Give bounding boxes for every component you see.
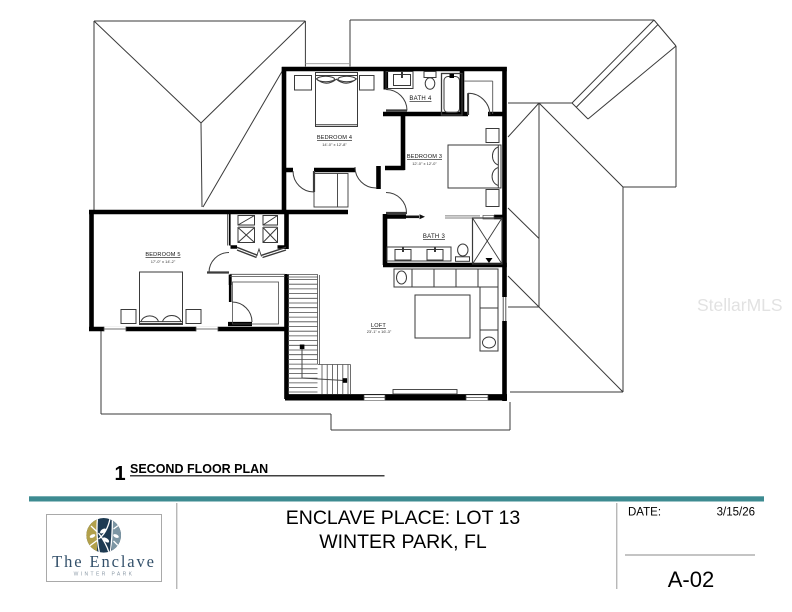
svg-text:StellarMLS: StellarMLS [697,295,783,315]
svg-text:BATH 4: BATH 4 [409,96,432,102]
svg-text:BEDROOM 4: BEDROOM 4 [317,135,352,141]
svg-text:1: 1 [115,463,126,485]
svg-text:3/15/26: 3/15/26 [717,507,755,519]
svg-text:WINTER PARK, FL: WINTER PARK, FL [319,531,487,553]
svg-text:23'-1" x 16'-3": 23'-1" x 16'-3" [367,329,392,334]
svg-text:DATE:: DATE: [628,507,661,519]
svg-text:BEDROOM 5: BEDROOM 5 [145,252,180,258]
svg-text:17'-0" x 14'-2": 17'-0" x 14'-2" [151,259,176,264]
svg-text:The Enclave: The Enclave [52,552,156,571]
svg-text:BATH 3: BATH 3 [423,234,446,240]
svg-text:A-02: A-02 [668,567,714,592]
svg-text:SECOND FLOOR PLAN: SECOND FLOOR PLAN [130,462,268,476]
svg-text:14'-0" x 12'-8": 14'-0" x 12'-8" [322,142,347,147]
svg-text:12'-0" x 12'-0": 12'-0" x 12'-0" [412,161,437,166]
svg-text:ENCLAVE PLACE: LOT 13: ENCLAVE PLACE: LOT 13 [286,507,520,529]
svg-text:BEDROOM 3: BEDROOM 3 [407,154,442,160]
svg-text:WINTER PARK: WINTER PARK [74,572,135,578]
